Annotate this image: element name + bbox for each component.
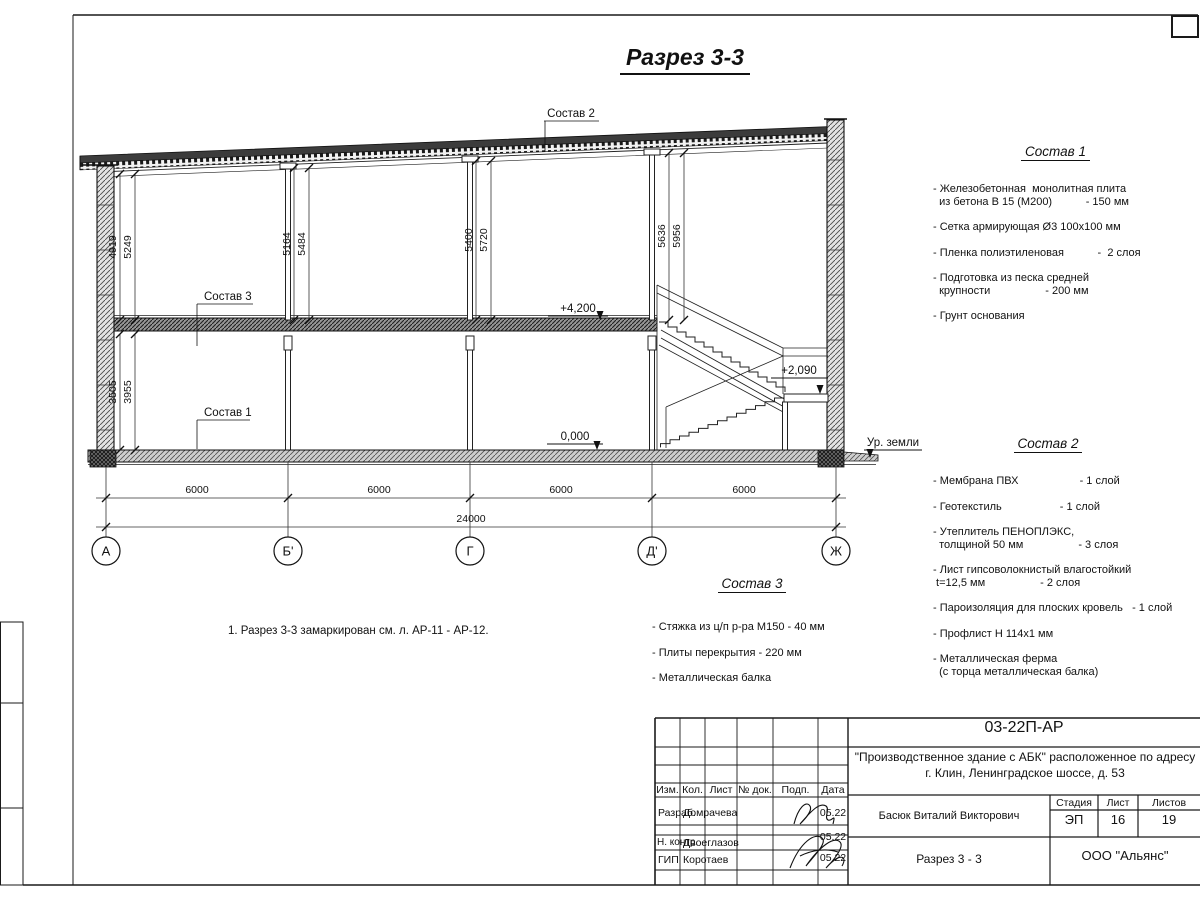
vdim-5636: 5636: [656, 224, 668, 248]
legend-2-item: - Пароизоляция для плоских кровель - 1 с…: [933, 602, 1193, 615]
stair-landing: [784, 394, 828, 402]
roof: [80, 126, 844, 177]
legend-2-item: - Утеплитель ПЕНОПЛЭКС, толщиной 50 мм -…: [933, 526, 1193, 551]
sheets-total: 19: [1138, 814, 1200, 826]
legend-sostav-3: Состав 3 - Стяжка из ц/п р-ра М150 - 40 …: [652, 576, 852, 698]
legend-2-item: - Лист гипсоволокнистый влагостойкий t=1…: [933, 564, 1193, 589]
legend-1-item: - Железобетонная монолитная плита из бет…: [933, 183, 1178, 208]
legend-3-item: - Металлическая балка: [652, 672, 852, 685]
legend-1-item: - Грунт основания: [933, 310, 1178, 323]
legend-2-item: - Мембрана ПВХ - 1 слой: [933, 475, 1193, 488]
vdim-5720: 5720: [478, 228, 490, 252]
legend-2-item: - Металлическая ферма (с торца металличе…: [933, 653, 1193, 678]
dim-total: 24000: [456, 513, 485, 525]
upper-flight-steps: [659, 322, 785, 392]
vdim-5249: 5249: [122, 235, 134, 259]
bottom-dimensions: 6000 6000 6000 6000 24000: [96, 462, 846, 537]
vdim-3955: 3955: [122, 380, 134, 404]
legend-3-title: Состав 3: [652, 576, 852, 593]
drawing-title: Разрез 3 - 3: [848, 853, 1050, 865]
row-name: Двоеглазов: [683, 837, 739, 849]
dim-bay-3: 6000: [549, 484, 573, 496]
row-date: 05.22: [818, 831, 848, 843]
level-2090: +2,090: [781, 365, 817, 377]
col-header-izm: Изм.: [655, 784, 680, 796]
legend-sostav-2: Состав 2 - Мембрана ПВХ - 1 слой - Геоте…: [933, 436, 1193, 691]
sheet-label: Лист: [1098, 797, 1138, 809]
stage-label: Стадия: [1050, 797, 1098, 809]
vdim-3505: 3505: [107, 380, 119, 404]
vdim-5164: 5164: [281, 232, 293, 256]
vdim-4919: 4919: [107, 235, 119, 259]
foundation-block: [90, 450, 116, 467]
col-header-ndok: № док.: [737, 784, 773, 796]
legend-1-item: - Пленка полиэтиленовая - 2 слоя: [933, 247, 1178, 260]
col-header-kol: Кол.: [680, 784, 705, 796]
foundation-block: [818, 450, 844, 467]
level-4200: +4,200: [560, 303, 596, 315]
sheets-label: Листов: [1138, 797, 1200, 809]
stage-value: ЭП: [1050, 814, 1098, 826]
lower-columns: [284, 336, 656, 450]
row-name: Коротаев: [683, 854, 728, 866]
left-wall: [82, 165, 118, 450]
drawing-note: 1. Разрез 3-3 замаркирован см. л. АР-11 …: [228, 625, 489, 637]
vdim-5484: 5484: [296, 232, 308, 256]
row-role: ГИП: [658, 854, 679, 866]
approver-name: Басюк Виталий Викторович: [848, 810, 1050, 822]
legend-2-item: - Профлист Н 114х1 мм: [933, 628, 1193, 641]
vertical-dim-labels: 4919 5249 3505 3955 5164 5484 5400 5720 …: [107, 224, 683, 404]
callout-sostav2: Состав 2: [547, 108, 595, 120]
axis-d: Д': [646, 544, 657, 559]
axis-g: Г: [466, 544, 473, 559]
vdim-5400: 5400: [463, 228, 475, 252]
project-name-line2: г. Клин, Ленинградское шоссе, д. 53: [850, 767, 1200, 779]
dimension-ticks: [116, 149, 688, 454]
blind-area: [844, 452, 878, 461]
legend-1-title: Состав 1: [933, 144, 1178, 161]
project-name-line1: "Производственное здание с АБК" располож…: [850, 751, 1200, 763]
dim-bay-4: 6000: [732, 484, 756, 496]
ground-slab: [88, 450, 878, 467]
level-0000: 0,000: [561, 431, 590, 443]
landing-support: [783, 402, 788, 450]
building-section: [80, 119, 878, 467]
company-name: ООО "Альянс": [1050, 850, 1200, 862]
col-header-data: Дата: [818, 784, 848, 796]
col-header-podp: Подп.: [773, 784, 818, 796]
legend-3-item: - Стяжка из ц/п р-ра М150 - 40 мм: [652, 621, 852, 634]
row-name: Домрачева: [683, 807, 737, 819]
page-title: Разрез 3-3: [570, 44, 800, 75]
legend-3-item: - Плиты перекрытия - 220 мм: [652, 647, 852, 660]
ground-level-label: Ур. земли: [867, 437, 919, 449]
row-date: 05.22: [818, 852, 848, 864]
legend-2-item: - Геотекстиль - 1 слой: [933, 501, 1193, 514]
axis-zh: Ж: [830, 544, 842, 559]
doc-number: 03-22П-АР: [848, 722, 1200, 734]
floor-slab: [114, 316, 657, 332]
lower-flight-steps: [661, 398, 785, 447]
vdim-5956: 5956: [671, 224, 683, 248]
filing-box: [1, 703, 24, 808]
legend-1-item: - Сетка армирующая Ø3 100х100 мм: [933, 221, 1178, 234]
callout-sostav3: Состав 3: [204, 291, 252, 303]
legend-1-item: - Подготовка из песка средней крупности …: [933, 272, 1178, 297]
legend-sostav-1: Состав 1 - Железобетонная монолитная пли…: [933, 144, 1178, 336]
row-date: 05.22: [818, 807, 848, 819]
col-header-list: Лист: [705, 784, 737, 796]
callout-sostav1: Состав 1: [204, 407, 252, 419]
filing-box: [1, 622, 24, 703]
corner-box: [1172, 16, 1198, 37]
sheet-number: 16: [1098, 814, 1138, 826]
drawing-sheet: 4919 5249 3505 3955 5164 5484 5400 5720 …: [0, 0, 1200, 900]
axis-b: Б': [282, 544, 293, 559]
dim-bay-1: 6000: [185, 484, 209, 496]
axis-a: А: [102, 544, 111, 559]
axis-bubbles: А Б' Г Д' Ж: [92, 537, 850, 565]
legend-2-title: Состав 2: [933, 436, 1163, 453]
dim-bay-2: 6000: [367, 484, 391, 496]
filing-box: [1, 808, 24, 885]
